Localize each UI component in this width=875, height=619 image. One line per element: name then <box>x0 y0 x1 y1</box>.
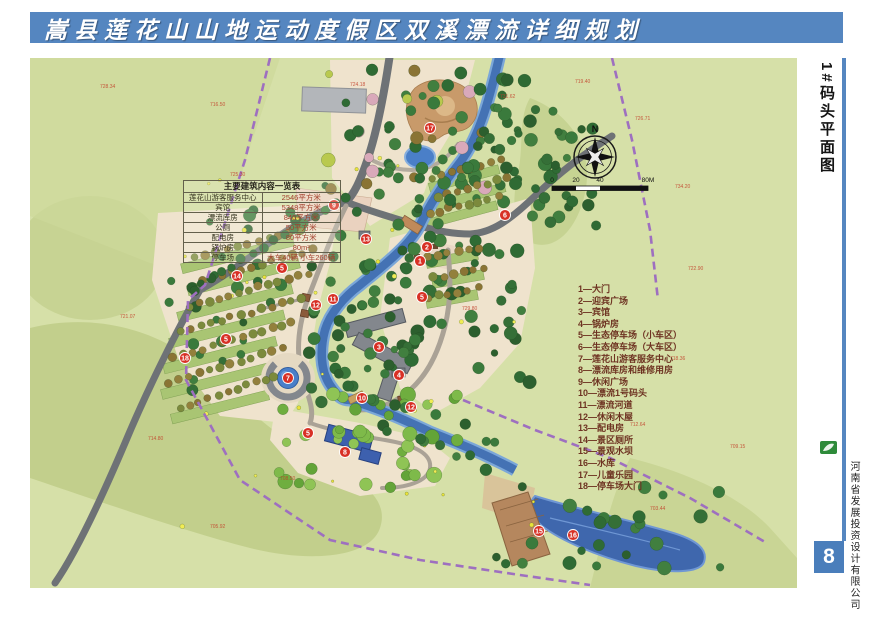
svg-text:12: 12 <box>407 405 415 412</box>
svg-text:17: 17 <box>426 126 434 133</box>
table-row: 莲花山游客服务中心2546平方米 <box>184 193 341 203</box>
scale-label: 0 <box>550 177 554 184</box>
map-marker: 13 <box>361 234 372 245</box>
elevation-label: 719.40 <box>575 79 591 85</box>
svg-text:10: 10 <box>358 396 366 403</box>
legend: 1—大门2—迎宾广场3—宾馆4—锅炉房5—生态停车场（小车区）6—生态停车场（大… <box>578 284 682 493</box>
legend-item: 11—漂流河道 <box>578 400 682 412</box>
legend-item: 7—莲花山游客服务中心 <box>578 354 682 366</box>
legend-item: 10—漂流1号码头 <box>578 388 682 400</box>
legend-item: 3—宾馆 <box>578 307 682 319</box>
table-cell-value: 2546平方米 <box>262 193 341 203</box>
legend-item: 18—停车场大门 <box>578 481 682 493</box>
map-marker: 5 <box>221 334 232 345</box>
map-marker: 6 <box>500 210 511 221</box>
elevation-label: 721.07 <box>120 314 136 320</box>
svg-text:3: 3 <box>377 345 381 352</box>
scale-label: 80M <box>642 177 655 184</box>
elevation-label: 728.34 <box>100 84 116 90</box>
svg-text:16: 16 <box>569 533 577 540</box>
svg-text:5: 5 <box>224 337 228 344</box>
map-marker: 12 <box>311 300 322 311</box>
table-cell-name: 漂流库房 <box>184 213 263 223</box>
building-table: 主要建筑内容一览表莲花山游客服务中心2546平方米宾馆5348平方米漂流库房84… <box>183 180 341 263</box>
svg-text:5: 5 <box>280 266 284 273</box>
table-cell-name: 停车场 <box>184 253 263 263</box>
svg-text:1: 1 <box>418 259 422 266</box>
scale-label: 20 <box>572 177 580 184</box>
table-cell-name: 锅炉房 <box>184 243 263 253</box>
elevation-label: 703.44 <box>650 506 666 512</box>
map-marker: 12 <box>406 402 417 413</box>
legend-item: 4—锅炉房 <box>578 319 682 331</box>
map-marker: 11 <box>328 294 339 305</box>
table-cell-value: 80平方米 <box>262 233 341 243</box>
map-marker: 15 <box>534 526 545 537</box>
page-number-badge: 8 <box>814 541 844 573</box>
elevation-label: 708.50 <box>280 476 296 482</box>
elevation-label: 705.92 <box>210 524 226 530</box>
map-marker: 4 <box>394 370 405 381</box>
legend-item: 1—大门 <box>578 284 682 296</box>
elevation-label: 729.80 <box>462 306 478 312</box>
elevation-label: 734.20 <box>675 184 691 190</box>
company-logo-icon <box>820 441 837 454</box>
elevation-label: 731.62 <box>500 94 516 100</box>
table-cell-name: 宾馆 <box>184 203 263 213</box>
elevation-label: 722.90 <box>688 266 704 272</box>
elevation-label: 716.50 <box>210 102 226 108</box>
svg-text:11: 11 <box>329 297 337 304</box>
plan-sheet-label: 1#码头平面图 <box>816 62 837 175</box>
map-marker: 14 <box>232 271 243 282</box>
scale-label: 40 <box>596 177 604 184</box>
table-cell-value: 5348平方米 <box>262 203 341 213</box>
table-cell-name: 公厕 <box>184 223 263 233</box>
legend-item: 8—漂流库房和维修用房 <box>578 365 682 377</box>
company-name: 河南省发展投资设计有限公司 <box>846 461 861 611</box>
legend-item: 9—休闲广场 <box>578 377 682 389</box>
table-row: 锅炉房80m² <box>184 243 341 253</box>
map-marker: 17 <box>425 123 436 134</box>
elevation-label: 714.80 <box>148 436 164 442</box>
svg-text:15: 15 <box>535 529 543 536</box>
map-marker: 2 <box>422 242 433 253</box>
table-row: 公厕50平方米 <box>184 223 341 233</box>
svg-text:5: 5 <box>420 295 424 302</box>
north-label: N <box>592 124 599 134</box>
svg-text:4: 4 <box>397 373 401 380</box>
site-plan-map: N 0204080M 728.34716.50724.18731.62719.4… <box>30 58 797 588</box>
map-marker: 5 <box>277 263 288 274</box>
map-marker: 8 <box>340 447 351 458</box>
table-cell-value: 80m² <box>262 243 341 253</box>
legend-item: 12—休闲木屋 <box>578 412 682 424</box>
elevation-label: 709.15 <box>730 444 746 450</box>
svg-text:18: 18 <box>181 356 189 363</box>
svg-text:7: 7 <box>286 376 290 383</box>
map-marker: 10 <box>357 393 368 404</box>
map-marker: 16 <box>568 530 579 541</box>
svg-text:14: 14 <box>233 274 241 281</box>
elevation-label: 726.71 <box>635 116 651 122</box>
svg-text:6: 6 <box>503 213 507 220</box>
legend-item: 14—景区厕所 <box>578 435 682 447</box>
legend-item: 2—迎宾广场 <box>578 296 682 308</box>
table-cell-name: 莲花山游客服务中心 <box>184 193 263 203</box>
legend-item: 6—生态停车场（大车区） <box>578 342 682 354</box>
legend-item: 13—配电房 <box>578 423 682 435</box>
svg-text:5: 5 <box>306 431 310 438</box>
legend-item: 16—水库 <box>578 458 682 470</box>
table-row: 宾馆5348平方米 <box>184 203 341 213</box>
table-cell-value: 840平方米 <box>262 213 341 223</box>
svg-text:8: 8 <box>343 450 347 457</box>
map-marker: 3 <box>374 342 385 353</box>
table-row: 漂流库房840平方米 <box>184 213 341 223</box>
svg-text:13: 13 <box>362 237 370 244</box>
legend-item: 17—儿童乐园 <box>578 470 682 482</box>
map-marker: 5 <box>303 428 314 439</box>
map-marker: 5 <box>417 292 428 303</box>
svg-text:2: 2 <box>425 245 429 252</box>
elevation-label: 724.18 <box>350 82 366 88</box>
map-marker: 1 <box>415 256 426 267</box>
map-marker: 7 <box>283 373 294 384</box>
table-cell-name: 配电房 <box>184 233 263 243</box>
table-cell-value: 大车40辆 小车260辆 <box>262 253 341 263</box>
table-row: 配电房80平方米 <box>184 233 341 243</box>
svg-text:12: 12 <box>312 303 320 310</box>
page-title: 嵩县莲花山山地运动度假区双溪漂流详细规划 <box>30 12 843 43</box>
table-row: 停车场大车40辆 小车260辆 <box>184 253 341 263</box>
legend-item: 5—生态停车场（小车区） <box>578 330 682 342</box>
map-marker: 18 <box>180 353 191 364</box>
elevation-label: 725.30 <box>230 172 246 178</box>
table-title: 主要建筑内容一览表 <box>184 181 341 193</box>
table-cell-value: 50平方米 <box>262 223 341 233</box>
legend-item: 15—景观水坝 <box>578 446 682 458</box>
